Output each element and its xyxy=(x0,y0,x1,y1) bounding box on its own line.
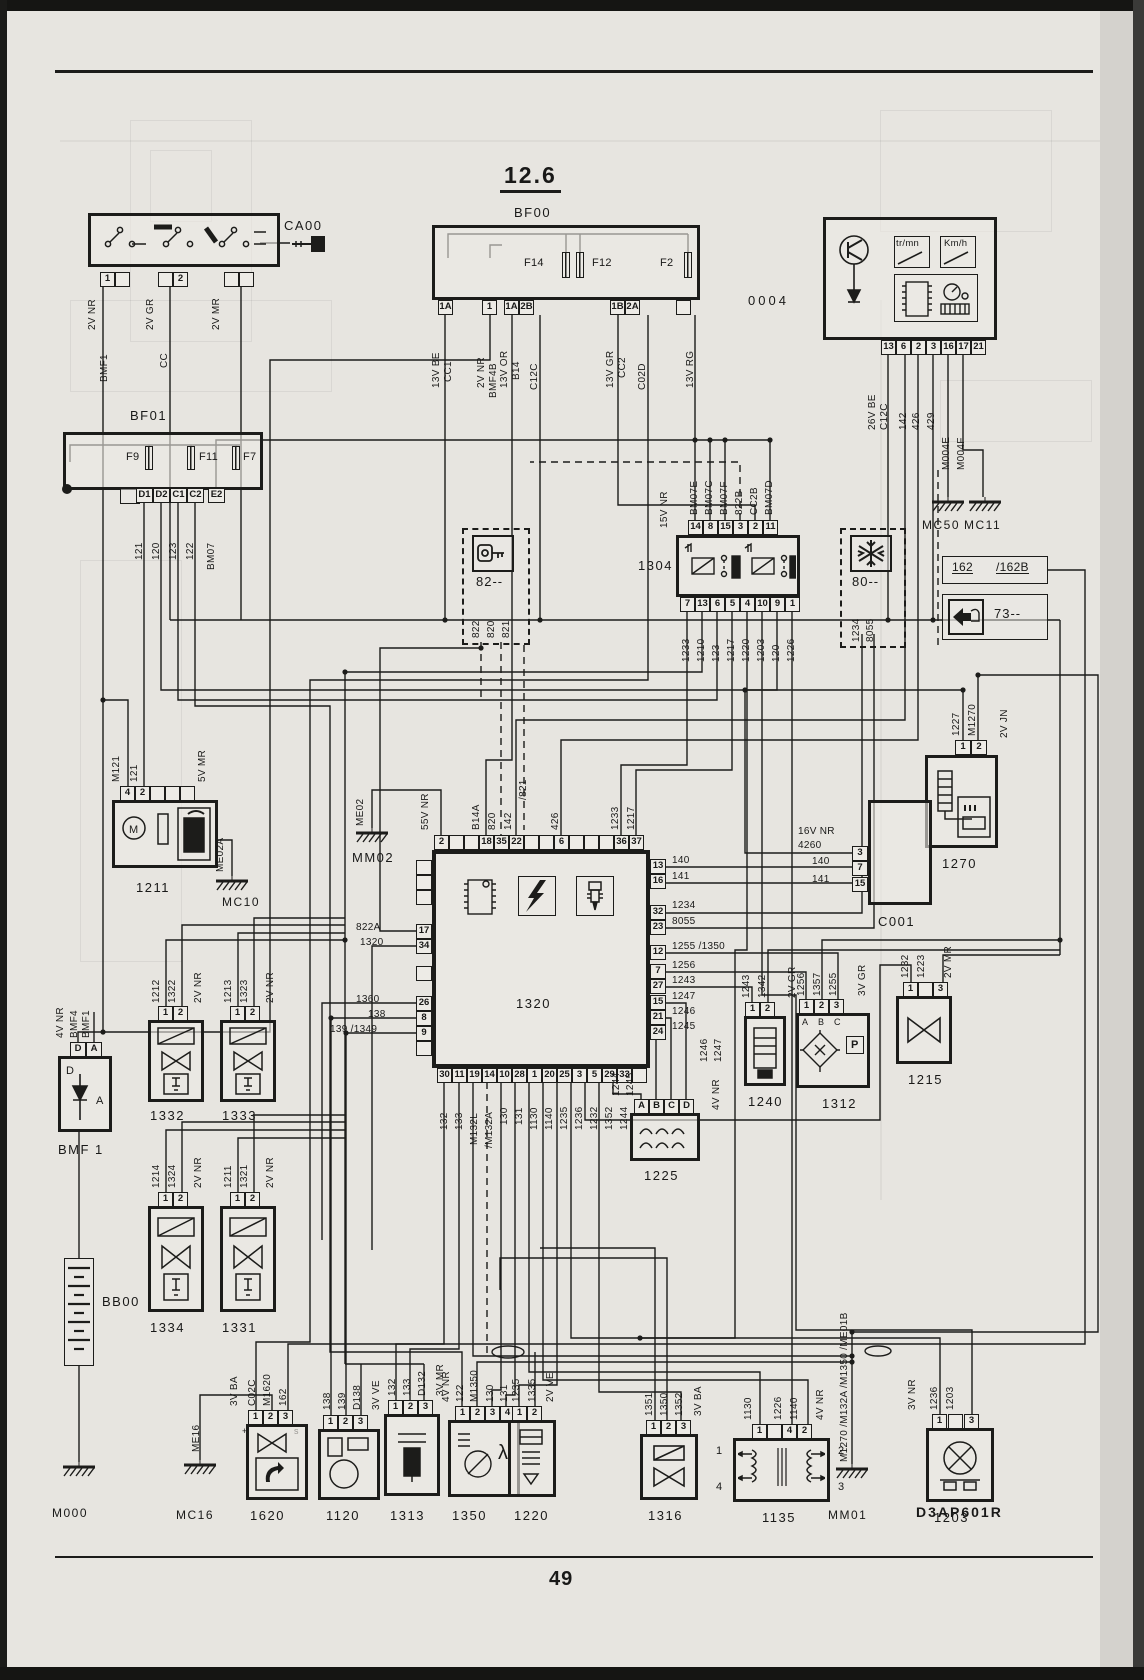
page-number: 49 xyxy=(549,1568,573,1591)
wire-label: 4V NR xyxy=(712,1079,722,1110)
ecu-pin: 32 xyxy=(650,905,666,920)
comp-1620-pin: 2 xyxy=(263,1410,278,1425)
gauge-label-kmh: Km/h xyxy=(944,238,967,249)
ecu-pin xyxy=(416,875,432,890)
wire-label: 1210 xyxy=(697,639,707,662)
ecu-pin xyxy=(449,835,464,850)
bf01-terminal-dot xyxy=(60,482,74,496)
wire-label: 140 xyxy=(812,856,830,867)
wire-label: 1236 xyxy=(930,1387,940,1410)
ecu-pin: 12 xyxy=(650,945,666,960)
relay-pin: 7 xyxy=(680,597,695,612)
wire-label: 1226 xyxy=(774,1397,784,1420)
wire-label: 1233 xyxy=(682,639,692,662)
comp-1350-pin: 2 xyxy=(470,1406,485,1421)
wire-label: 1214 xyxy=(152,1165,162,1188)
comp-1135-pin: 4 xyxy=(782,1424,797,1439)
injector-icon xyxy=(584,880,606,912)
wire-label: 141 xyxy=(812,874,830,885)
wire-label: 1350 xyxy=(660,1393,670,1416)
comp-1203-pin: 1 xyxy=(932,1414,947,1429)
ca00-pin xyxy=(115,272,130,287)
wire-label: 3V NR xyxy=(908,1379,918,1410)
wire-label: 139 xyxy=(338,1392,348,1410)
comp-1312-a: A xyxy=(802,1017,808,1028)
wire-label: 123 xyxy=(169,542,179,560)
comp-1120-label: 1120 xyxy=(326,1508,360,1523)
bf01-pin: D1 xyxy=(136,488,153,503)
wire-label: 131 xyxy=(515,1107,525,1125)
comp-1312-b: B xyxy=(818,1017,824,1028)
inj-pin: 2 xyxy=(173,1006,188,1021)
wire-label: 4260 xyxy=(798,840,821,851)
bf00-pin-2b: 2B xyxy=(519,300,534,315)
ca00-pin-1: 1 xyxy=(100,272,115,287)
wire-label: 1140 xyxy=(545,1107,555,1130)
ecu-pin: 28 xyxy=(512,1068,527,1083)
c001-pin: 7 xyxy=(852,861,868,876)
ground-label-mc16: MC16 xyxy=(176,1508,214,1522)
ecu-pin: 17 xyxy=(416,924,432,939)
bf00-pin-1b: 1B xyxy=(610,300,625,315)
wire-label: 1130 xyxy=(530,1107,540,1130)
wire-label: M1350 xyxy=(470,1370,480,1402)
wire-label: M121 xyxy=(112,756,122,782)
injector-internals-icon xyxy=(154,1026,198,1096)
wire-label: 1220 xyxy=(742,639,752,662)
fuse-icon xyxy=(232,446,240,470)
wire-label: 1243 xyxy=(742,975,752,998)
ground-label-mc11: MC11 xyxy=(964,518,1001,532)
injector-internals-icon xyxy=(154,1216,198,1304)
comp-1312-pin: 2 xyxy=(814,999,829,1014)
wire-label: M132L xyxy=(470,1113,480,1145)
wire-label: 1203 xyxy=(757,639,767,662)
ecu-pin: 8 xyxy=(416,1011,432,1026)
relay-pin: 15 xyxy=(718,520,733,535)
inj-pin: 1 xyxy=(230,1006,245,1021)
wire-label: 1357 xyxy=(813,973,823,996)
relay-pin: 11 xyxy=(763,520,778,535)
wire-label: 426 xyxy=(912,412,922,430)
wire-label: 1223 xyxy=(917,955,927,978)
wire-label: ME02 xyxy=(356,799,366,826)
bf00-pin xyxy=(676,300,691,315)
ecu-pin xyxy=(569,835,584,850)
comp-1215-pin: 1 xyxy=(903,982,918,997)
comp-1240-pin: 2 xyxy=(760,1002,775,1017)
wire-label: 140 xyxy=(672,855,690,866)
heater-zigzag-icon xyxy=(454,1428,494,1488)
cluster-pin: 2 xyxy=(911,340,926,355)
wire-label: M1270 xyxy=(968,704,978,736)
transistor-diode-icon xyxy=(836,232,872,318)
wire-label: 2V GR xyxy=(146,298,156,330)
wire-label: 133 xyxy=(403,1378,413,1396)
wire-label: 141 xyxy=(672,871,690,882)
ecu-pin: 14 xyxy=(482,1068,497,1083)
wire-label: 15V NR xyxy=(660,491,670,528)
c001-pin: 3 xyxy=(852,846,868,861)
snowflake-icon xyxy=(855,538,887,569)
c001-pin: 15 xyxy=(852,877,868,892)
ecu-pin xyxy=(416,890,432,905)
comp-1135-pin xyxy=(767,1424,782,1439)
ecu-pin xyxy=(464,835,479,850)
inj-pin: 2 xyxy=(245,1192,260,1207)
wire-label: 3V VE xyxy=(372,1380,382,1410)
ecu-pin: 19 xyxy=(467,1068,482,1083)
ecu-pin: 13 xyxy=(650,859,666,874)
relay-pin: 1 xyxy=(785,597,800,612)
comp-1350-pin: 1 xyxy=(455,1406,470,1421)
wire-label: 130 xyxy=(486,1384,496,1402)
wire-label: 1212 xyxy=(152,980,162,1003)
ecu-pin xyxy=(584,835,599,850)
comp-1313-label: 1313 xyxy=(390,1508,425,1523)
connector-block-icon xyxy=(636,1120,694,1154)
wire-label: 1256 xyxy=(797,973,807,996)
wire-label: BMF1 xyxy=(100,354,110,382)
inj-1332-label: 1332 xyxy=(150,1108,185,1123)
comp-1225-label: 1225 xyxy=(644,1168,679,1183)
bf01-pin: C2 xyxy=(187,488,204,503)
wire-label: CC xyxy=(160,353,170,368)
comp-1313-pin: 1 xyxy=(388,1400,403,1415)
comp-1225-pin: D xyxy=(679,1099,694,1114)
comp-1313-pin: 2 xyxy=(403,1400,418,1415)
ecu-label: 1320 xyxy=(516,996,551,1011)
bf00-pin-1: 1 xyxy=(482,300,497,315)
comp-1313-pin: 3 xyxy=(418,1400,433,1415)
chip-icon xyxy=(460,876,500,918)
wire-label: 26V BE xyxy=(868,394,878,430)
wire-label: C02D xyxy=(638,363,648,390)
ecu-pin: 21 xyxy=(650,1010,666,1025)
ecu-pin: 34 xyxy=(416,939,432,954)
fuse-icon xyxy=(576,252,584,278)
wire-label: 426 xyxy=(551,812,561,830)
inj-1333-label: 1333 xyxy=(222,1108,257,1123)
pump-motor-icon: M xyxy=(118,806,212,862)
fuse-icon xyxy=(684,252,692,278)
battery-label: BB00 xyxy=(102,1294,140,1309)
wire-label: D138 xyxy=(353,1385,363,1410)
ground-label-mm01: MM01 xyxy=(828,1508,867,1522)
comp-1316-label: 1316 xyxy=(648,1508,683,1523)
wire-label: 2V NR xyxy=(194,1157,204,1188)
dbox-a: A xyxy=(96,1096,104,1107)
relay-1304-label: 1304 xyxy=(638,558,673,573)
inj-pin: 2 xyxy=(173,1192,188,1207)
wire-label: 132 xyxy=(388,1378,398,1396)
bf01-pin: C1 xyxy=(170,488,187,503)
wire-label: C12C xyxy=(880,403,890,430)
bf01-pin: D2 xyxy=(153,488,170,503)
wire-label: 55V NR xyxy=(421,793,431,830)
wire-label: 1352 xyxy=(675,1393,685,1416)
gauge-label-trmn: tr/mn xyxy=(896,238,919,249)
ecu-pin: 27 xyxy=(650,979,666,994)
box-82-label: 82-- xyxy=(476,576,503,587)
ecu-pin: 7 xyxy=(650,964,666,979)
cluster-pin: 6 xyxy=(896,340,911,355)
wire-label: 1324 xyxy=(168,1165,178,1188)
cluster-pin: 13 xyxy=(881,340,896,355)
wire-label: 2V VE xyxy=(546,1372,556,1402)
comp-1215-pin xyxy=(918,982,933,997)
ecu-pin: 18 xyxy=(479,835,494,850)
fuse-label-f9: F9 xyxy=(126,452,139,463)
knock-sensor-icon xyxy=(392,1424,432,1486)
inj-pin: 2 xyxy=(245,1006,260,1021)
ecu-pin: 23 xyxy=(650,920,666,935)
bf00-pin-1a2: 1A xyxy=(504,300,519,315)
wire-label: 131 xyxy=(500,1384,510,1402)
wire-label: 1235 xyxy=(512,1379,522,1402)
ground-icon xyxy=(354,828,390,844)
wire-label: 2V JN xyxy=(1000,709,1010,738)
wire-label: 16V NR xyxy=(798,826,835,837)
resistor-heater-icon xyxy=(932,765,992,843)
comp-1225-pin: A xyxy=(634,1099,649,1114)
wire-label: 2V NR xyxy=(266,1157,276,1188)
comp-1350-pin: 3 xyxy=(485,1406,500,1421)
wire-label: 13V GR xyxy=(606,351,616,388)
ca00-pin-2: 2 xyxy=(173,272,188,287)
ground-icon xyxy=(182,1460,218,1476)
wire-label: 2V MR xyxy=(212,298,222,330)
lightning-icon xyxy=(520,878,554,914)
wire-label: 1247 xyxy=(714,1039,724,1062)
comp-1211-pin xyxy=(150,786,165,801)
wire-label: M1270 /M132A /M1350 /ME01B xyxy=(840,1312,850,1462)
comp-1203-pin: 3 xyxy=(964,1414,979,1429)
wire-label: B14 xyxy=(512,361,522,380)
inj-pin: 1 xyxy=(230,1192,245,1207)
wire-label: 2V NR xyxy=(266,972,276,1003)
relay-pin: 8 xyxy=(703,520,718,535)
wire-label: 130 xyxy=(500,1107,510,1125)
ecu-pin: 9 xyxy=(416,1026,432,1041)
wire-label: 822 xyxy=(472,620,482,638)
wire-label: 1255 xyxy=(829,973,839,996)
ca00-label: CA00 xyxy=(284,218,323,233)
wire-label: 822A xyxy=(356,922,381,933)
fuel-sender-icon xyxy=(750,1024,780,1080)
wire-label: 3V BA xyxy=(694,1386,704,1416)
coil-terminal-4: 4 xyxy=(716,1482,722,1493)
ca00-pin xyxy=(239,272,254,287)
wire-label: 1335 xyxy=(528,1379,538,1402)
ecu-pin: 22 xyxy=(509,835,524,850)
wire-label: 1255 /1350 xyxy=(672,941,725,952)
box-162-a: 162 xyxy=(952,562,973,574)
comp-1211-pin xyxy=(165,786,180,801)
ecu-pin: 26 xyxy=(416,996,432,1011)
ecu-pin: 37 xyxy=(629,835,644,850)
fuse-icon xyxy=(562,252,570,278)
wire-label: 820 xyxy=(488,812,498,830)
comp-1215-pin: 3 xyxy=(933,982,948,997)
dbox-pin: D xyxy=(70,1042,86,1057)
wire-label: CC2B xyxy=(750,487,760,515)
wire-label: 2V NR xyxy=(194,972,204,1003)
wire-label: 1211 xyxy=(224,1165,234,1188)
wire-label: 1246 xyxy=(700,1039,710,1062)
ecu-pin: 24 xyxy=(650,1025,666,1040)
dbox-label: BMF 1 xyxy=(58,1142,104,1157)
wire-label: 1360 xyxy=(356,994,379,1005)
fuse-icon xyxy=(145,446,153,470)
cluster-pin: 17 xyxy=(956,340,971,355)
wire-label: 3V BA xyxy=(230,1376,240,1406)
comp-1135-pin: 2 xyxy=(797,1424,812,1439)
wire-label: 138 xyxy=(368,1009,386,1020)
wire-label: C12C xyxy=(530,363,540,390)
comp-1312-pin: 1 xyxy=(799,999,814,1014)
wire-label: 1352 xyxy=(605,1107,615,1130)
wire-label: M1620 xyxy=(263,1374,273,1406)
comp-1312-c: C xyxy=(834,1017,841,1028)
wire-label: 4V NR xyxy=(56,1007,66,1038)
diode-bridge-icon xyxy=(800,1030,842,1076)
comp-1620-pin: 1 xyxy=(248,1410,263,1425)
injector-internals-icon xyxy=(226,1216,270,1304)
bf00-label: BF00 xyxy=(514,205,551,220)
ecu-pin: 5 xyxy=(587,1068,602,1083)
wire-label: 1322 xyxy=(168,980,178,1003)
wire-label: 5V MR xyxy=(198,750,208,782)
wire-label: BMF4 xyxy=(70,1010,80,1038)
wire-label: 121 xyxy=(135,542,145,560)
box-80-label: 80-- xyxy=(852,576,879,587)
comp-1316-pin: 1 xyxy=(646,1420,661,1435)
comp-1211-pin: 2 xyxy=(135,786,150,801)
ecu-pin: 2 xyxy=(434,835,449,850)
injector-internals-icon xyxy=(226,1026,270,1096)
c001-label: C001 xyxy=(878,914,915,929)
ecu-pin: 20 xyxy=(542,1068,557,1083)
fuse-label-f2: F2 xyxy=(660,258,673,269)
comp-1240-pin: 1 xyxy=(745,1002,760,1017)
wire-label: 8055 xyxy=(866,619,876,642)
comp-1270-pin: 1 xyxy=(955,740,971,755)
wire-label: 1256 xyxy=(672,960,695,971)
wire-label: 1140 xyxy=(790,1397,800,1420)
wire-label: 822B xyxy=(735,490,745,515)
comp-1270-pin: 2 xyxy=(971,740,987,755)
odometer-icon xyxy=(938,280,974,318)
wire-label: 139 /1349 xyxy=(330,1024,377,1035)
inj-1334-label: 1334 xyxy=(150,1320,185,1335)
ground-label-mc10: MC10 xyxy=(222,895,260,909)
wire-label: 2V MR xyxy=(944,946,954,978)
wire-label: 120 xyxy=(772,644,782,662)
ground-icon xyxy=(61,1462,97,1478)
wire-label: 1234 xyxy=(852,619,862,642)
wire-label: 1320 xyxy=(360,937,383,948)
wire-label: 4V NR xyxy=(816,1389,826,1420)
comp-1220-label: 1220 xyxy=(514,1508,549,1523)
wire-label: 8055 xyxy=(672,916,695,927)
compressor-icon xyxy=(934,1436,986,1494)
wire-label: 122 xyxy=(456,1384,466,1402)
comp-1220-pin: 2 xyxy=(527,1406,542,1421)
wire-label: 2V NR xyxy=(477,357,487,388)
wire-label: 13V RG xyxy=(686,351,696,388)
cluster-label: 0004 xyxy=(748,293,789,308)
comp-1211-label: 1211 xyxy=(136,880,170,895)
comp-1135-pin: 1 xyxy=(752,1424,767,1439)
bf01-label: BF01 xyxy=(130,408,167,423)
fuse-label-f11: F11 xyxy=(199,452,218,463)
wire-label: 820 xyxy=(487,620,497,638)
wire-label: BM07C xyxy=(705,480,715,515)
wire-label: 1217 xyxy=(727,639,737,662)
comp-1120-pin: 2 xyxy=(338,1415,353,1430)
needle-icon xyxy=(942,250,974,266)
comp-1312-pin: 3 xyxy=(829,999,844,1014)
wire-label: 4V NR xyxy=(442,1371,452,1402)
coil-terminal-3: 3 xyxy=(838,1482,844,1493)
wire-label: 1246 xyxy=(672,1006,695,1017)
diode-icon xyxy=(68,1072,92,1124)
comp-1270-label: 1270 xyxy=(942,856,977,871)
valve-icon xyxy=(906,1010,942,1050)
relay-pin: 14 xyxy=(688,520,703,535)
temp-sensor-icon xyxy=(514,1426,550,1490)
wire-label: BM07 xyxy=(207,543,217,570)
wire-label: 1245 xyxy=(672,1021,695,1032)
coil-terminal-1: 1 xyxy=(716,1446,722,1457)
ecu-pin xyxy=(416,966,432,981)
wire-label: 138 xyxy=(323,1392,333,1410)
battery-icon xyxy=(66,1262,92,1362)
relay-pin: 3 xyxy=(733,520,748,535)
wire-label: B14A xyxy=(472,804,482,830)
comp-1350-label: 1350 xyxy=(452,1508,487,1523)
wire-label: 1245 xyxy=(626,1073,636,1096)
wire-label: ME16 xyxy=(192,1425,202,1452)
dbox-pin: A xyxy=(86,1042,102,1057)
wire-label: CC1 xyxy=(444,361,454,382)
wire-label: 1235 xyxy=(560,1107,570,1130)
bf00-pin-2a: 2A xyxy=(625,300,640,315)
c001-box xyxy=(868,800,932,905)
ecu-pin: 10 xyxy=(497,1068,512,1083)
wire-label: CC2 xyxy=(618,357,628,378)
wire-label: 821 xyxy=(502,620,512,638)
wire-label: 120 xyxy=(152,542,162,560)
cluster-pin: 3 xyxy=(926,340,941,355)
wire-label: 1321 xyxy=(240,1165,250,1188)
fuse-label-f7: F7 xyxy=(243,452,256,463)
wire-label: 13V BE xyxy=(432,352,442,388)
wire-label: /821 xyxy=(519,779,529,800)
comp-1220-pin: 1 xyxy=(512,1406,527,1421)
wire-label: 121 xyxy=(130,764,140,782)
fuse-icon xyxy=(187,446,195,470)
wire-label: 1233 xyxy=(611,807,621,830)
ground-label-mm02: MM02 xyxy=(352,850,394,865)
ecu-pin: 3 xyxy=(572,1068,587,1083)
wire-label: D132 xyxy=(418,1371,428,1396)
wire-label: ME02A xyxy=(216,838,226,872)
comp-1620-pin: 3 xyxy=(278,1410,293,1425)
box-73-label: 73-- xyxy=(994,608,1021,619)
comp-1316-pin: 2 xyxy=(661,1420,676,1435)
